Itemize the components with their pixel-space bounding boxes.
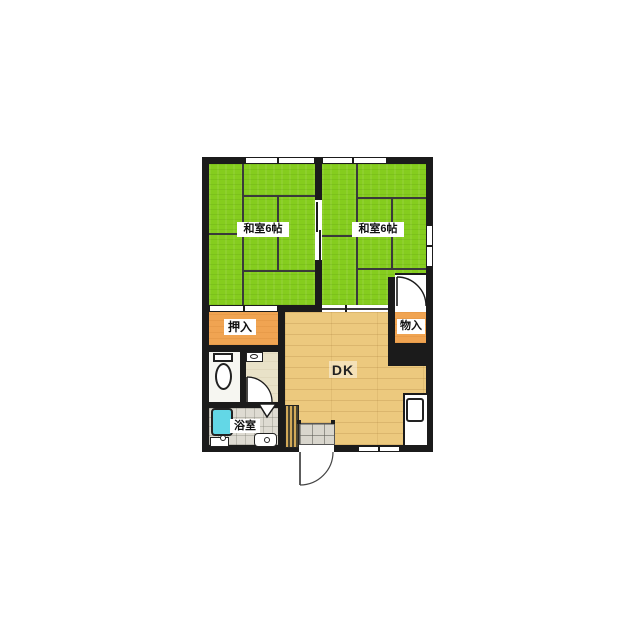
window-tick bbox=[378, 446, 380, 452]
door-jamb bbox=[297, 420, 301, 424]
genkan-tile bbox=[299, 423, 335, 445]
storage-label: 物入 bbox=[397, 319, 425, 334]
window-top-left bbox=[245, 157, 315, 164]
wall-storage-bottom bbox=[388, 343, 433, 366]
faucet-icon bbox=[220, 435, 226, 441]
window-top-right bbox=[322, 157, 387, 164]
tatami-line bbox=[356, 268, 426, 270]
hand-sink-basin bbox=[250, 354, 258, 359]
sliding-door-tick bbox=[345, 305, 347, 312]
bathroom-label: 浴室 bbox=[230, 419, 260, 433]
window-tick bbox=[352, 157, 354, 164]
door-jamb bbox=[331, 420, 335, 424]
toilet-bowl bbox=[215, 363, 232, 390]
entrance-opening bbox=[299, 445, 334, 452]
dk-label: DK bbox=[329, 361, 357, 378]
door-swing-area bbox=[395, 273, 426, 312]
wall-outer-top bbox=[202, 157, 433, 164]
wall-closet-bottom bbox=[202, 345, 285, 352]
floor-plan: 和室6帖 和室6帖 押入 物入 浴室 DK bbox=[0, 0, 640, 640]
window-tick bbox=[277, 157, 279, 164]
wall-outer-right bbox=[426, 157, 433, 452]
closet-label: 押入 bbox=[224, 319, 256, 335]
sliding-panel bbox=[319, 230, 321, 260]
shoe-cabinet bbox=[285, 405, 299, 448]
sliding-door-line bbox=[322, 308, 388, 310]
room-left-label: 和室6帖 bbox=[237, 222, 289, 237]
toilet-tank bbox=[213, 353, 233, 362]
kitchen-sink bbox=[406, 398, 424, 422]
tatami-line bbox=[322, 235, 356, 237]
washing-machine-dial bbox=[264, 437, 270, 443]
wall-service-block-right bbox=[278, 305, 285, 445]
sliding-panel bbox=[316, 202, 318, 232]
room-right-label: 和室6帖 bbox=[352, 222, 404, 237]
fusuma-tick bbox=[243, 305, 245, 312]
window-tick bbox=[426, 245, 433, 247]
tatami-line bbox=[242, 270, 315, 272]
